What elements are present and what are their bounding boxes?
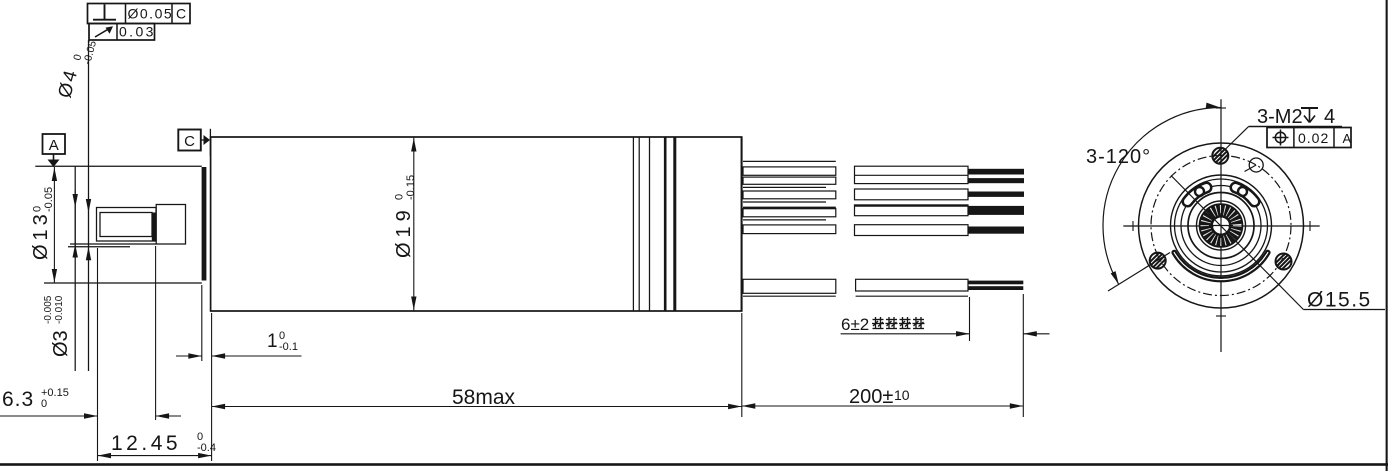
svg-text:-0.1: -0.1 — [279, 341, 298, 353]
svg-text:C: C — [184, 133, 195, 150]
svg-text:6±2: 6±2 — [841, 315, 869, 334]
svg-text:-0.15: -0.15 — [405, 175, 417, 200]
svg-text:-0.010: -0.010 — [54, 295, 65, 324]
svg-text:10: 10 — [894, 387, 910, 403]
svg-text:58max: 58max — [452, 386, 516, 409]
svg-text:Ø19: Ø19 — [393, 205, 415, 258]
svg-text:200±: 200± — [849, 386, 893, 408]
svg-text:Ø15.5: Ø15.5 — [1307, 289, 1372, 312]
svg-text:A: A — [1343, 131, 1352, 146]
svg-text:0.03: 0.03 — [119, 24, 156, 40]
svg-text:C: C — [176, 6, 186, 22]
svg-text:0: 0 — [394, 194, 406, 200]
svg-text:-0.4: -0.4 — [197, 442, 216, 454]
svg-text:4: 4 — [1324, 106, 1335, 128]
svg-text:Ø0.05: Ø0.05 — [128, 6, 174, 22]
svg-text:Ø13: Ø13 — [30, 210, 52, 260]
svg-text:1: 1 — [267, 331, 278, 352]
svg-text:0: 0 — [41, 398, 47, 410]
svg-text:3-M2: 3-M2 — [1257, 106, 1303, 128]
svg-text:Ø3: Ø3 — [50, 330, 72, 357]
svg-text:A: A — [49, 137, 59, 154]
svg-text:-0.05: -0.05 — [43, 187, 55, 212]
svg-text:0: 0 — [32, 206, 44, 212]
svg-text:6.3: 6.3 — [2, 388, 34, 411]
svg-text:0.02: 0.02 — [1298, 130, 1329, 146]
svg-text:3-120°: 3-120° — [1086, 146, 1151, 168]
svg-text:12.45: 12.45 — [111, 432, 181, 455]
svg-text:-0.005: -0.005 — [43, 295, 54, 324]
